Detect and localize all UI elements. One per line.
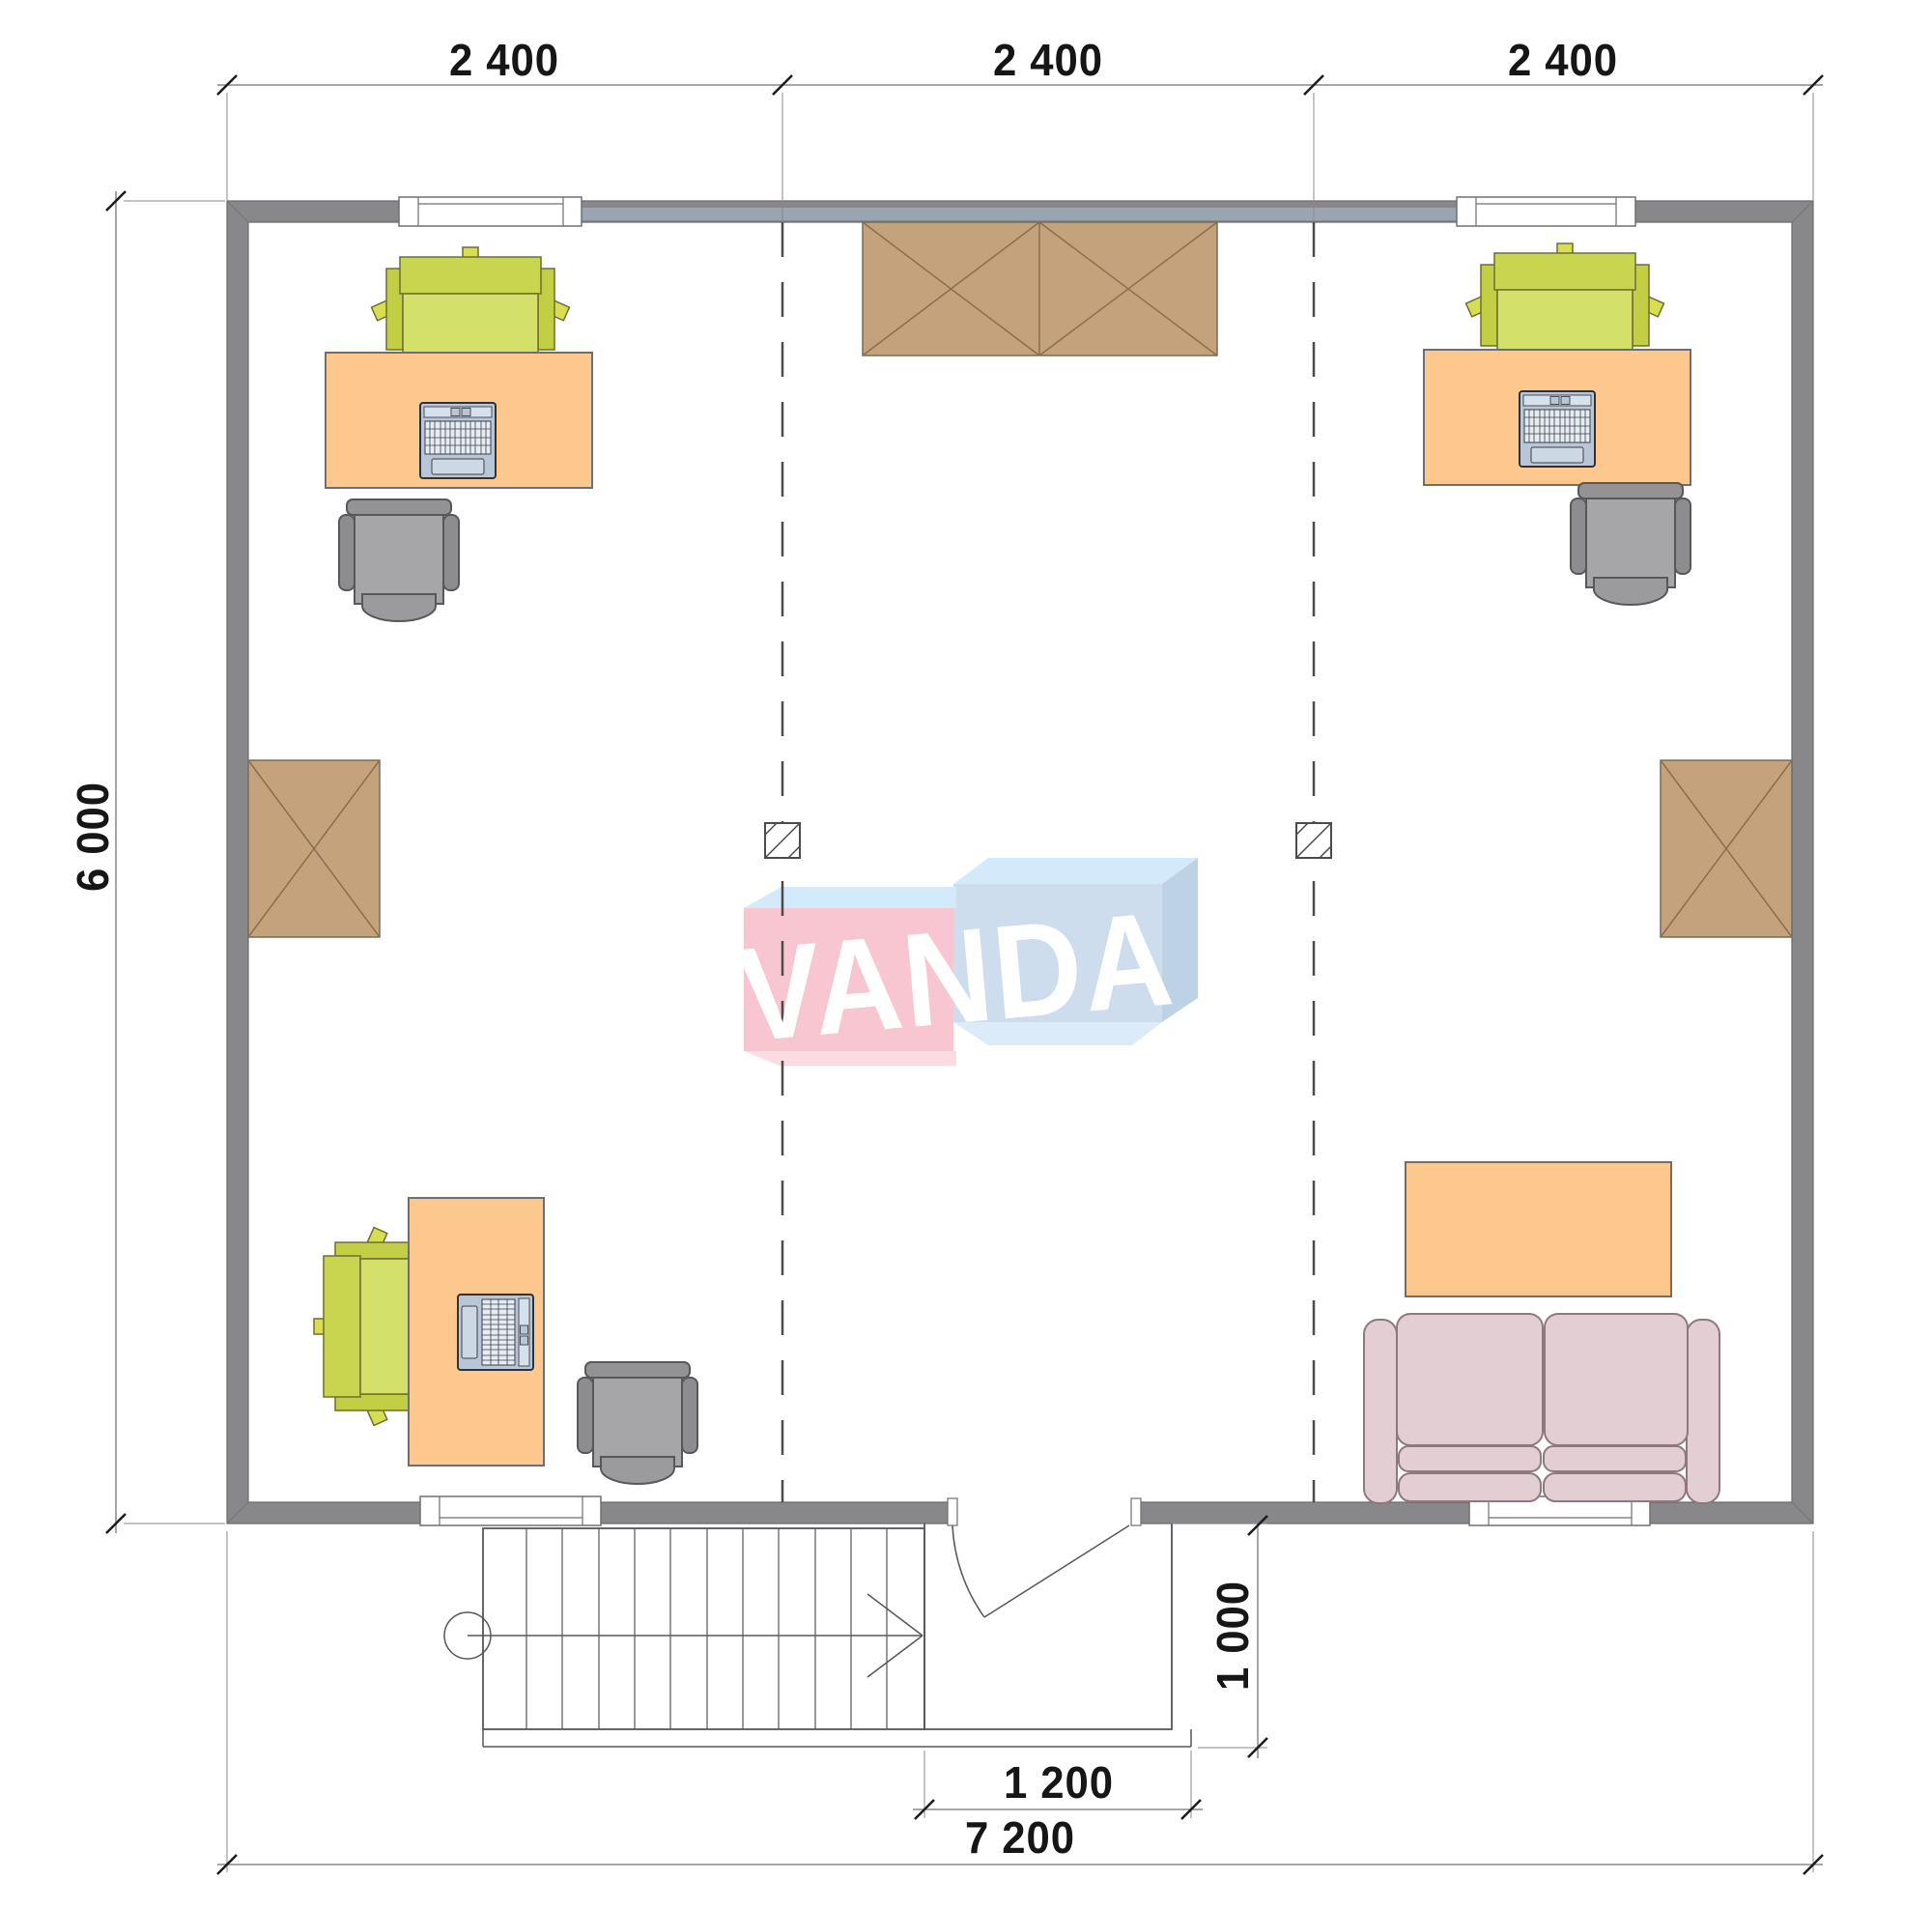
- coffee-table: [1406, 1162, 1671, 1296]
- sofa-armrest-right: [1687, 1320, 1719, 1503]
- dim-top-span-3: 2 400: [1508, 34, 1618, 86]
- sofa-front-edge: [1399, 1473, 1541, 1501]
- entrance-door: [948, 1498, 1141, 1617]
- sofa-seat-cushion: [1399, 1446, 1541, 1471]
- door-leaf: [984, 1525, 1129, 1617]
- office-chair: [578, 1362, 697, 1484]
- sofa: [1364, 1314, 1719, 1503]
- cabinet-left-wall: [248, 760, 380, 937]
- office-chair: [339, 499, 459, 621]
- laptop: [1520, 391, 1595, 467]
- office-chair: [1571, 483, 1690, 605]
- workstation-top-left: [326, 247, 592, 621]
- sofa-armrest-left: [1364, 1320, 1397, 1503]
- sofa-back-cushion: [1545, 1314, 1688, 1445]
- door-jamb-left: [948, 1498, 957, 1525]
- staircase: [444, 1528, 1191, 1747]
- sofa-seat-cushion: [1544, 1446, 1686, 1471]
- wardrobe-top-center: [863, 222, 1217, 356]
- column-symbol-right: [1296, 823, 1331, 858]
- sofa-back-cushion: [1397, 1314, 1543, 1445]
- door-swing-arc: [952, 1525, 984, 1617]
- dim-entry-depth: 1 000: [1207, 1581, 1259, 1691]
- entrance-porch: [924, 1524, 1172, 1729]
- laptop: [420, 403, 496, 478]
- wall-lintel-band: [582, 208, 1457, 220]
- cabinet-right-wall: [1661, 760, 1792, 937]
- window-bottom-left: [420, 1496, 601, 1525]
- task-chair: [314, 1228, 424, 1426]
- task-chair: [372, 247, 570, 357]
- floor-plan-canvas: VANDA 2 400 2 400 2 400 6 000 1 000 1 20…: [0, 0, 1932, 1908]
- dim-total-width: 7 200: [965, 1811, 1075, 1864]
- workstation-top-right: [1424, 243, 1690, 605]
- dim-left-height: 6 000: [67, 782, 119, 892]
- dim-top-span-1: 2 400: [449, 34, 559, 86]
- workstation-bottom-left: [314, 1198, 697, 1484]
- window-top-left: [399, 197, 582, 226]
- window-top-right: [1457, 197, 1635, 226]
- sofa-front-edge: [1544, 1473, 1686, 1501]
- dim-entry-width: 1 200: [1004, 1756, 1114, 1808]
- task-chair: [1466, 243, 1664, 354]
- column-symbol-left: [765, 823, 800, 858]
- door-jamb-right: [1131, 1498, 1141, 1525]
- laptop: [458, 1295, 533, 1370]
- dim-top-span-2: 2 400: [993, 34, 1103, 86]
